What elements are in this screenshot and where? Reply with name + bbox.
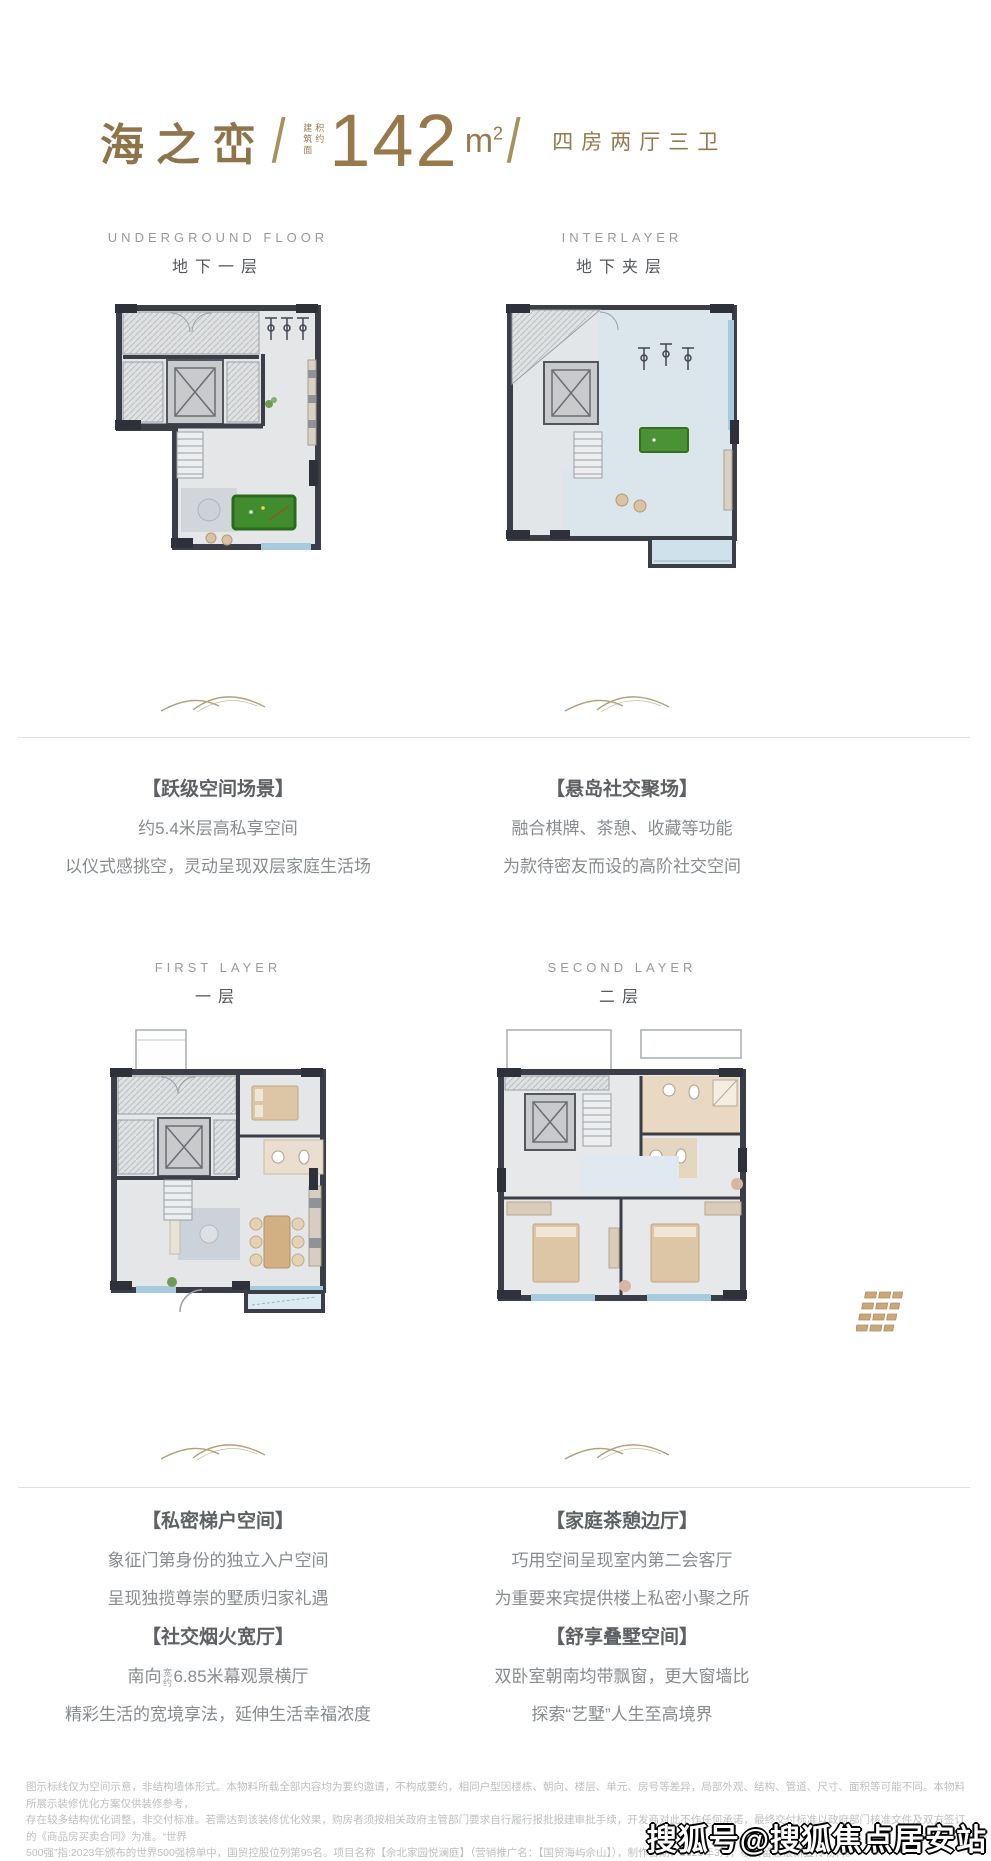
dining-set — [250, 1216, 304, 1268]
floorplan-first-layer — [16, 1028, 420, 1318]
mountain-squiggle-icon — [420, 690, 824, 716]
section-headers-row1: UNDERGROUND FLOOR 地下一层 INTERLAYER 地下夹层 — [16, 228, 824, 279]
elevator — [544, 362, 598, 424]
feature-title: 【私密梯户空间】 — [142, 1502, 294, 1542]
feature-line: 象征门第身份的独立入户空间 — [108, 1542, 329, 1580]
flower-icon — [619, 1280, 631, 1292]
feature-line: 以仪式感挑空，灵动呈现双层家庭生活场 — [65, 848, 371, 886]
stairs — [177, 432, 203, 478]
feature-line-prefix: 南向 — [127, 1667, 161, 1686]
stairs — [574, 432, 602, 478]
bed — [252, 1086, 298, 1120]
feature-block-underground: 【跃级空间场景】 约5.4米层高私享空间 以仪式感挑空，灵动呈现双层家庭生活场 — [16, 770, 420, 886]
feature-line: 为重要来宾提供楼上私密小聚之所 — [495, 1580, 750, 1618]
divider-line — [18, 737, 970, 738]
feature-line: 为款待密友而设的高阶社交空间 — [503, 848, 741, 886]
billiard-table — [640, 428, 688, 452]
area-unit-sup: 2 — [493, 123, 503, 143]
floorplan-poster: 海之峦 / 建筑面积约 142 m2 / 四房两厅三卫 UNDERGROUND … — [0, 0, 991, 1861]
features-row1: 【跃级空间场景】 约5.4米层高私享空间 以仪式感挑空，灵动呈现双层家庭生活场 … — [16, 770, 824, 886]
feature-title: 【家庭茶憩边厅】 — [546, 1502, 698, 1542]
section-title-en: SECOND LAYER — [548, 958, 697, 978]
slash-divider: / — [272, 106, 286, 177]
section-title-cn: 地下夹层 — [576, 257, 668, 279]
feature-line: 探索“艺墅”人生至高境界 — [531, 1696, 712, 1734]
floorplan-underground-svg — [111, 300, 326, 555]
entry-door-arc — [180, 1290, 202, 1312]
balcony — [246, 1286, 323, 1311]
area-prefix-label: 建筑面积约 — [301, 123, 325, 159]
floorplan-second-layer-svg — [491, 1028, 753, 1318]
feature-title: 【舒享叠墅空间】 — [546, 1618, 698, 1658]
area-unit: m2 — [465, 122, 503, 161]
section-headers-row2: FIRST LAYER 一层 SECOND LAYER 二层 — [16, 958, 824, 1009]
feature-title: 【跃级空间场景】 — [142, 770, 294, 810]
feature-title: 【悬岛社交聚场】 — [546, 770, 698, 810]
feature-block-first-layer: 【私密梯户空间】 象征门第身份的独立入户空间 呈现独揽尊崇的墅质归家礼遇 【社交… — [16, 1502, 420, 1734]
area-unit-base: m — [465, 122, 493, 160]
section-title-en: INTERLAYER — [562, 228, 683, 248]
feature-line: 呈现独揽尊崇的墅质归家礼遇 — [108, 1580, 329, 1618]
terrace-outline — [136, 1030, 186, 1072]
flower-icon — [731, 1178, 743, 1190]
window-strip — [531, 1294, 595, 1301]
divider-line — [18, 1487, 970, 1488]
section-header-second: SECOND LAYER 二层 — [420, 958, 824, 1009]
billiard-table — [233, 496, 295, 529]
stairs — [583, 1094, 611, 1146]
gym-equipment-icons — [265, 318, 309, 340]
window-strip — [261, 543, 311, 550]
mountain-squiggle-icon — [16, 690, 420, 716]
stacked-floors-icon — [856, 1290, 906, 1343]
feature-block-second-layer: 【家庭茶憩边厅】 巧用空间呈现室内第二会客厅 为重要来宾提供楼上私密小聚之所 【… — [420, 1502, 824, 1734]
mountain-squiggle-icon — [16, 1438, 420, 1464]
terrace-outline — [641, 1030, 741, 1058]
section-header-underground: UNDERGROUND FLOOR 地下一层 — [16, 228, 420, 279]
feature-title: 【社交烟火宽厅】 — [142, 1618, 294, 1658]
floorplan-interlayer — [420, 300, 824, 572]
section-header-first: FIRST LAYER 一层 — [16, 958, 420, 1009]
bed — [533, 1224, 579, 1282]
layout-text: 四房两厅三卫 — [552, 126, 726, 156]
area-value: 142 — [329, 104, 458, 178]
mountain-squiggle-icon — [420, 1438, 824, 1464]
window-strip — [728, 320, 734, 430]
slash-divider: / — [507, 106, 521, 177]
stairs — [164, 1180, 192, 1220]
feature-block-interlayer: 【悬岛社交聚场】 融合棋牌、茶憩、收藏等功能 为款待密友而设的高阶社交空间 — [420, 770, 824, 886]
feature-line: 精彩生活的宽境享法，延伸生活幸福浓度 — [65, 1696, 371, 1734]
section-title-en: UNDERGROUND FLOOR — [108, 228, 328, 248]
feature-line: 双卧室朝南均带飘窗，更大窗墙比 — [495, 1658, 750, 1696]
section-title-cn: 二层 — [599, 987, 645, 1009]
window-strip — [647, 1294, 711, 1301]
disclaimer-line: 图示标线仅为空间示意，非结构墙体形式。本物料所载全部内容均为要约邀请，不构成要约… — [26, 1779, 965, 1812]
floorplan-interlayer-svg — [502, 300, 742, 572]
floorplan-first-layer-svg — [106, 1028, 331, 1313]
section-title-cn: 地下一层 — [172, 257, 264, 279]
feature-line: 南向宽约6.85米幕观景横厅 — [127, 1658, 308, 1696]
squiggle-row1 — [16, 690, 824, 716]
bed — [651, 1224, 699, 1282]
terrace-outline — [507, 1030, 611, 1072]
feature-line: 约5.4米层高私享空间 — [138, 810, 298, 848]
floorplans-row1 — [16, 300, 824, 572]
feature-line: 融合棋牌、茶憩、收藏等功能 — [512, 810, 733, 848]
features-row2: 【私密梯户空间】 象征门第身份的独立入户空间 呈现独揽尊崇的墅质归家礼遇 【社交… — [16, 1502, 824, 1734]
feature-line: 巧用空间呈现室内第二会客厅 — [512, 1542, 733, 1580]
window-strip — [136, 1286, 176, 1293]
section-title-cn: 一层 — [195, 987, 241, 1009]
feature-line-suffix: 6.85米幕观景横厅 — [173, 1667, 308, 1686]
elevator — [158, 1118, 210, 1176]
feature-line-smalltext: 宽约 — [161, 1668, 173, 1688]
elevator — [167, 360, 223, 424]
section-header-interlayer: INTERLAYER 地下夹层 — [420, 228, 824, 279]
floorplan-underground — [16, 300, 420, 572]
floorplans-row2 — [16, 1028, 824, 1318]
header: 海之峦 / 建筑面积约 142 m2 / 四房两厅三卫 — [100, 96, 726, 186]
elevator — [525, 1094, 575, 1150]
project-name: 海之峦 — [100, 109, 268, 173]
watermark: 搜狐号@搜狐焦点居安站 — [647, 1815, 987, 1859]
balcony — [650, 538, 734, 566]
squiggle-row2 — [16, 1438, 824, 1464]
floorplan-second-layer — [420, 1028, 824, 1318]
plant-icon — [167, 1277, 177, 1287]
section-title-en: FIRST LAYER — [155, 958, 282, 978]
